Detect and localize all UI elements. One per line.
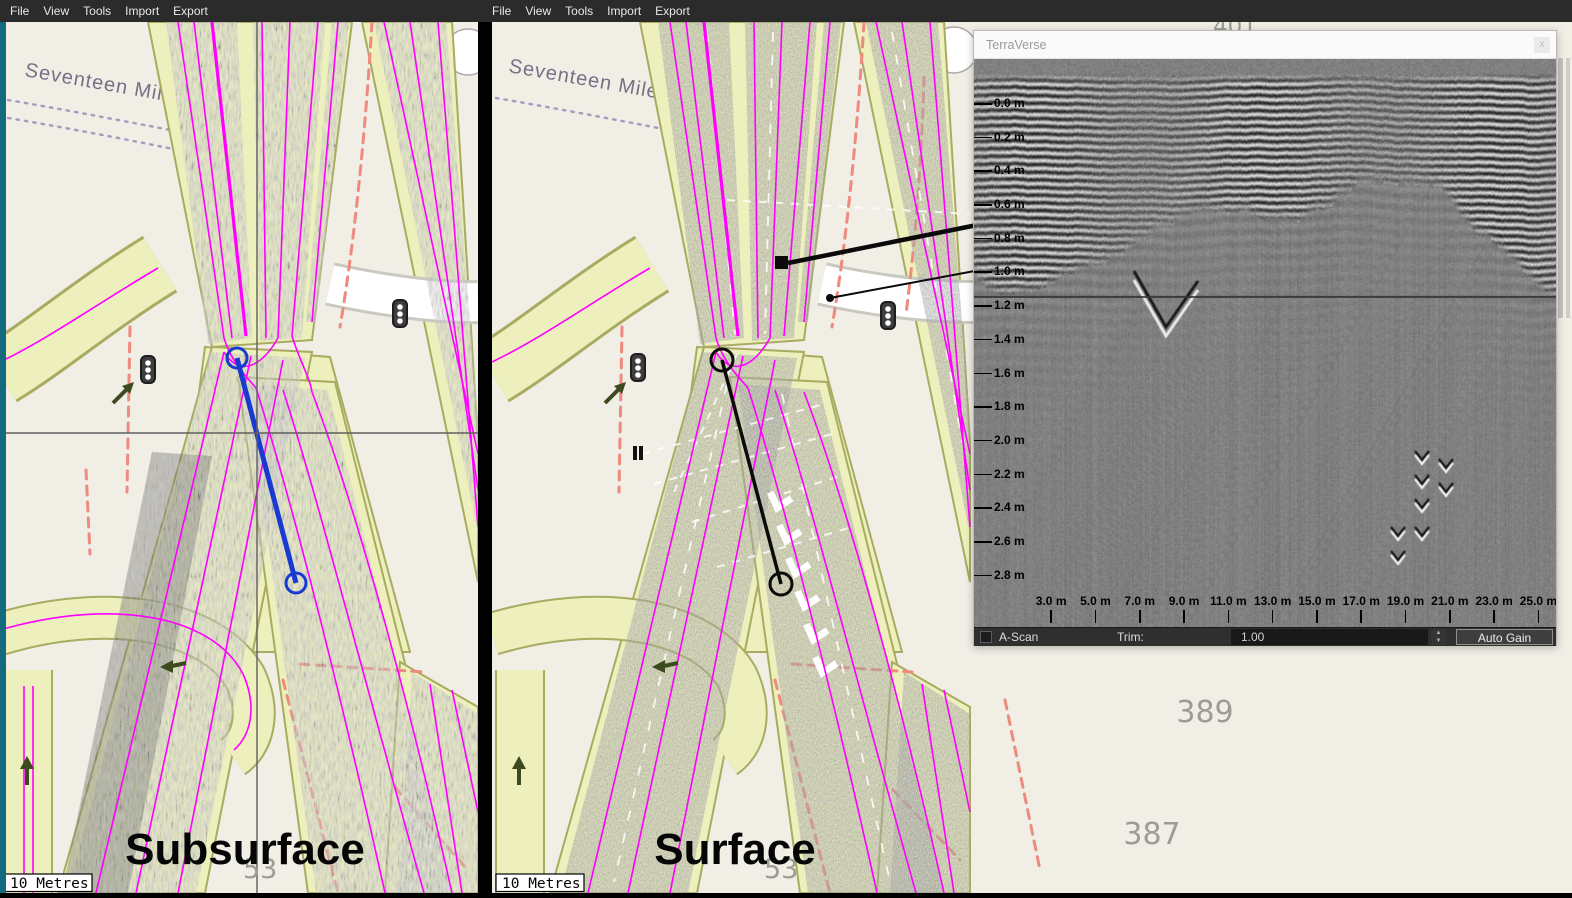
tick-mark [1095, 610, 1097, 623]
depth-axis: 0.0 m 0.2 m 0.4 m 0.6 m 0.8 m 1.0 m 1.2 … [974, 96, 1025, 601]
depth-tick: 1.6 m [974, 366, 1025, 400]
menu-item[interactable]: Import [607, 0, 641, 22]
menu-item[interactable]: View [43, 0, 69, 22]
tick-mark [974, 474, 992, 476]
spinner-stepper[interactable]: ▲▼ [1431, 629, 1446, 645]
depth-tick-label: 2.6 m [994, 534, 1025, 549]
distance-tick: 5.0 m [1073, 594, 1117, 623]
distance-tick-label: 7.0 m [1124, 594, 1155, 608]
depth-tick: 1.2 m [974, 298, 1025, 332]
depth-tick: 1.0 m [974, 264, 1025, 298]
scale-indicator: 10 Metres [496, 874, 584, 892]
depth-tick-label: 1.0 m [994, 264, 1025, 279]
depth-tick: 0.2 m [974, 130, 1025, 164]
depth-tick-label: 0.0 m [994, 96, 1025, 111]
panel-mode-label: Surface [654, 825, 815, 874]
distance-axis: 3.0 m 5.0 m 7.0 m 9.0 m 11.0 m 13.0 m 15… [1029, 594, 1556, 623]
a-scan-checkbox[interactable] [980, 631, 992, 643]
depth-tick-label: 1.6 m [994, 366, 1025, 381]
depth-tick-label: 2.4 m [994, 500, 1025, 515]
menu-item[interactable]: File [492, 0, 511, 22]
tick-mark [974, 406, 992, 408]
terraverse-controls: A-Scan Trim: ▲▼ Auto Gain [974, 627, 1556, 646]
panel-edge-strip [0, 22, 6, 893]
tick-mark [974, 103, 992, 105]
distance-tick-label: 19.0 m [1387, 594, 1424, 608]
depth-tick: 2.6 m [974, 534, 1025, 568]
depth-tick-label: 1.4 m [994, 332, 1025, 347]
tick-mark [974, 305, 992, 307]
depth-tick-label: 2.2 m [994, 467, 1025, 482]
close-icon[interactable]: x [1534, 37, 1550, 53]
tick-mark [974, 507, 992, 509]
distance-tick-label: 3.0 m [1036, 594, 1067, 608]
depth-tick: 0.8 m [974, 231, 1025, 265]
depth-tick-label: 1.8 m [994, 399, 1025, 414]
terraverse-titlebar[interactable]: TerraVerse x [974, 31, 1556, 59]
tick-mark [1405, 610, 1407, 623]
parcel-number: 389 [1176, 695, 1233, 730]
map-edge-roads [1558, 58, 1570, 318]
auto-gain-button[interactable]: Auto Gain [1456, 629, 1553, 645]
menu-item[interactable]: Export [655, 0, 690, 22]
tick-mark [974, 170, 992, 172]
distance-tick-label: 25.0 m [1520, 594, 1556, 608]
radargram-view[interactable]: 0.0 m 0.2 m 0.4 m 0.6 m 0.8 m 1.0 m 1.2 … [974, 59, 1556, 627]
depth-tick-label: 0.8 m [994, 231, 1025, 246]
tick-mark [1316, 610, 1318, 623]
distance-tick-label: 11.0 m [1210, 594, 1247, 608]
tick-mark [974, 440, 992, 442]
tick-mark [1449, 610, 1451, 623]
depth-tick: 2.8 m [974, 568, 1025, 602]
distance-tick: 19.0 m [1383, 594, 1427, 623]
tick-mark [974, 137, 992, 139]
menu-group-left: FileViewToolsImportExport [10, 0, 222, 22]
window-title: TerraVerse [986, 31, 1046, 59]
traffic-signal-icon [881, 302, 895, 329]
bottom-bar [0, 893, 1572, 898]
distance-tick-label: 9.0 m [1169, 594, 1200, 608]
trim-input[interactable] [1231, 629, 1428, 645]
distance-tick-label: 15.0 m [1298, 594, 1335, 608]
depth-tick-label: 2.8 m [994, 568, 1025, 583]
tick-mark [1493, 610, 1495, 623]
tick-mark [974, 575, 992, 577]
distance-tick: 13.0 m [1250, 594, 1294, 623]
scale-indicator: 10 Metres [4, 874, 92, 892]
distance-tick: 25.0 m [1516, 594, 1556, 623]
menu-item[interactable]: File [10, 0, 29, 22]
menu-group-right: FileViewToolsImportExport [492, 0, 704, 22]
tick-mark [1139, 610, 1141, 623]
tick-mark [1050, 610, 1052, 623]
a-scan-label: A-Scan [999, 630, 1038, 645]
traffic-signal-icon [393, 300, 407, 327]
terraverse-window[interactable]: TerraVerse x 0.0 m 0.2 m 0.4 m 0.6 m 0.8… [973, 30, 1557, 646]
svg-text:10 Metres: 10 Metres [502, 876, 581, 892]
menu-item[interactable]: Tools [565, 0, 593, 22]
tick-mark [1538, 610, 1540, 623]
distance-tick: 9.0 m [1162, 594, 1206, 623]
distance-tick-label: 5.0 m [1080, 594, 1111, 608]
depth-tick: 0.6 m [974, 197, 1025, 231]
depth-tick: 0.4 m [974, 163, 1025, 197]
tick-mark [974, 238, 992, 240]
panel-mode-label: Subsurface [125, 825, 365, 874]
traffic-signal-icon [141, 356, 155, 383]
distance-tick-label: 13.0 m [1254, 594, 1291, 608]
distance-tick: 3.0 m [1029, 594, 1073, 623]
distance-tick-label: 17.0 m [1343, 594, 1380, 608]
tick-mark [974, 541, 992, 543]
tick-mark [974, 271, 992, 273]
distance-tick: 21.0 m [1428, 594, 1472, 623]
menu-item[interactable]: Export [173, 0, 208, 22]
tick-mark [974, 373, 992, 375]
depth-tick: 2.0 m [974, 433, 1025, 467]
depth-tick-label: 2.0 m [994, 433, 1025, 448]
distance-tick: 11.0 m [1206, 594, 1250, 623]
depth-tick-label: 0.6 m [994, 197, 1025, 212]
svg-text:10 Metres: 10 Metres [10, 876, 89, 892]
menu-item[interactable]: View [525, 0, 551, 22]
trim-label: Trim: [1117, 630, 1144, 645]
tick-mark [1360, 610, 1362, 623]
tick-mark [1272, 610, 1274, 623]
radargram-canvas[interactable] [974, 59, 1556, 627]
depth-tick-label: 1.2 m [994, 298, 1025, 313]
distance-tick: 17.0 m [1339, 594, 1383, 623]
depth-tick: 1.8 m [974, 399, 1025, 433]
distance-tick: 7.0 m [1118, 594, 1162, 623]
parcel-number: 387 [1123, 817, 1180, 852]
menu-item[interactable]: Tools [83, 0, 111, 22]
distance-tick: 15.0 m [1295, 594, 1339, 623]
menu-bar: FileViewToolsImportExport FileViewToolsI… [0, 0, 1572, 22]
tick-mark [1228, 610, 1230, 623]
distance-tick: 23.0 m [1472, 594, 1516, 623]
depth-tick: 0.0 m [974, 96, 1025, 130]
depth-tick-label: 0.4 m [994, 163, 1025, 178]
distance-tick-label: 21.0 m [1431, 594, 1468, 608]
tick-mark [1183, 610, 1185, 623]
subsurface-map-panel[interactable]: Seventeen Mile Rock [0, 22, 478, 893]
tick-mark [974, 204, 992, 206]
distance-tick-label: 23.0 m [1475, 594, 1512, 608]
traffic-signal-icon [631, 354, 645, 381]
depth-tick: 1.4 m [974, 332, 1025, 366]
menu-item[interactable]: Import [125, 0, 159, 22]
depth-tick: 2.2 m [974, 467, 1025, 501]
depth-tick-label: 0.2 m [994, 130, 1025, 145]
depth-marker-line [974, 296, 1556, 298]
panel-divider [478, 22, 492, 893]
tick-mark [974, 339, 992, 341]
depth-tick: 2.4 m [974, 500, 1025, 534]
